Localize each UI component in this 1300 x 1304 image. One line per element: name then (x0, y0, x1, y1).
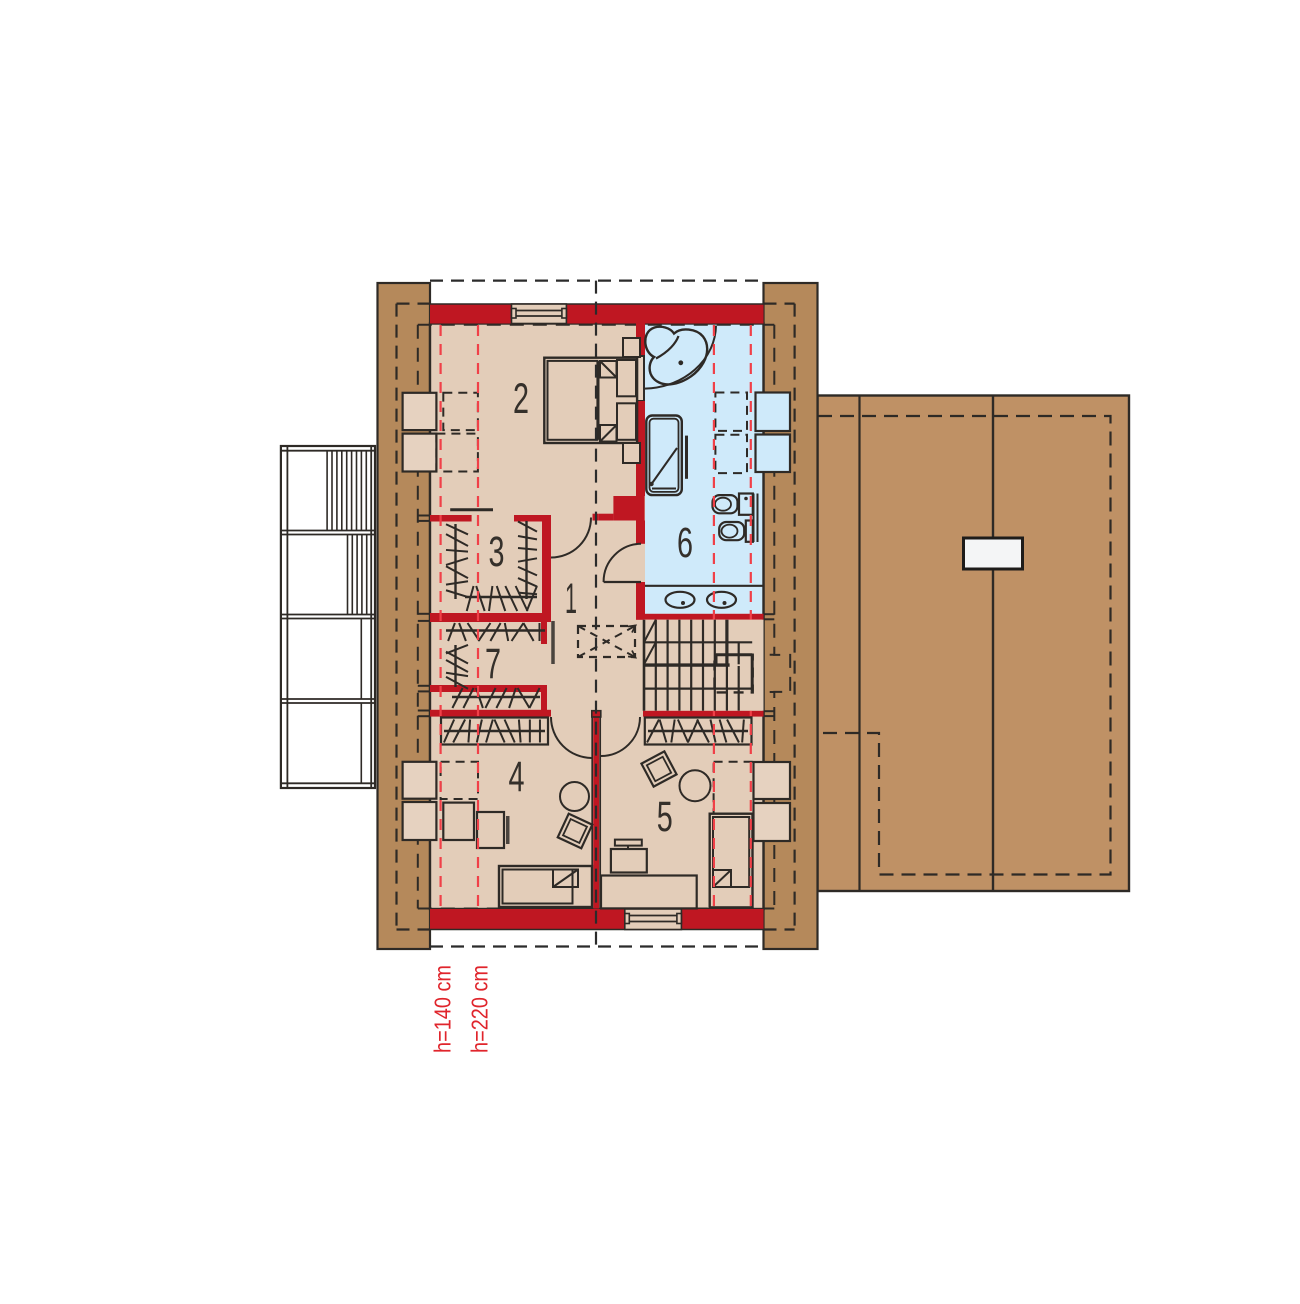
svg-text:6: 6 (677, 519, 693, 567)
svg-text:h=140 cm: h=140 cm (430, 965, 456, 1053)
svg-text:3: 3 (489, 528, 505, 576)
svg-text:7: 7 (485, 640, 501, 688)
svg-text:2: 2 (513, 375, 529, 423)
svg-text:1: 1 (565, 575, 577, 623)
svg-text:4: 4 (509, 753, 525, 801)
svg-text:h=220 cm: h=220 cm (467, 965, 493, 1053)
svg-text:5: 5 (657, 793, 673, 841)
